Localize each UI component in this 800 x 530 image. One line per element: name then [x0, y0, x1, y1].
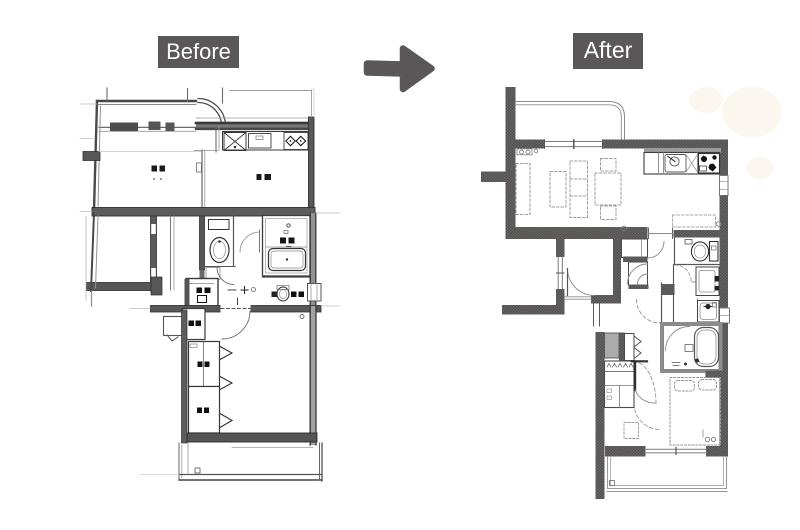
svg-text:Before: Before: [166, 39, 231, 64]
svg-text:After: After: [584, 37, 633, 63]
